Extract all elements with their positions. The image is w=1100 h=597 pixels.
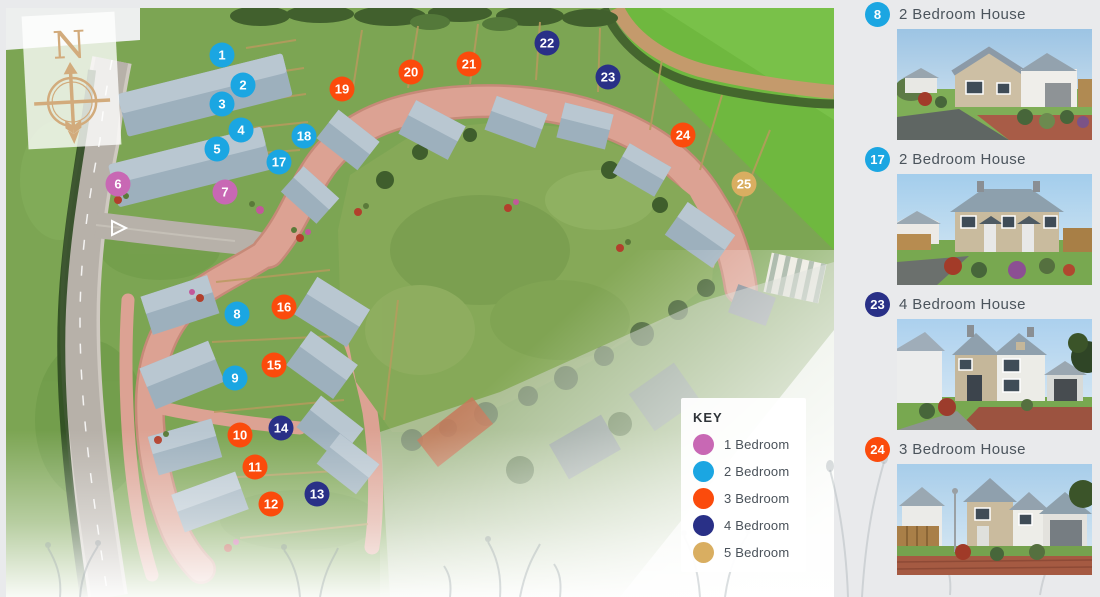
key-row-label: 5 Bedroom bbox=[724, 545, 789, 560]
plot-marker-22[interactable]: 22 bbox=[535, 31, 560, 56]
house-type-label: 2 Bedroom House bbox=[899, 151, 1026, 168]
plot-marker-12[interactable]: 12 bbox=[259, 492, 284, 517]
house-type-label: 3 Bedroom House bbox=[899, 441, 1026, 458]
plot-marker-9[interactable]: 9 bbox=[223, 366, 248, 391]
plot-marker-18[interactable]: 18 bbox=[292, 124, 317, 149]
plot-marker-16[interactable]: 16 bbox=[272, 295, 297, 320]
key-color-dot bbox=[693, 461, 714, 482]
plot-marker-25[interactable]: 25 bbox=[732, 172, 757, 197]
plot-badge: 17 bbox=[865, 147, 890, 172]
plot-marker-6[interactable]: 6 bbox=[106, 172, 131, 197]
house-type-label: 4 Bedroom House bbox=[899, 296, 1026, 313]
plot-marker-4[interactable]: 4 bbox=[229, 118, 254, 143]
compass-north-letter: N bbox=[51, 22, 87, 68]
plot-marker-21[interactable]: 21 bbox=[457, 52, 482, 77]
plot-marker-14[interactable]: 14 bbox=[269, 416, 294, 441]
key-row-label: 4 Bedroom bbox=[724, 518, 789, 533]
plot-marker-10[interactable]: 10 bbox=[228, 423, 253, 448]
house-photo bbox=[897, 319, 1092, 430]
plot-badge: 24 bbox=[865, 437, 890, 462]
plot-marker-3[interactable]: 3 bbox=[210, 92, 235, 117]
site-plan-page: N 12345678910111213141516171819202122232… bbox=[0, 0, 1100, 597]
plot-marker-17[interactable]: 17 bbox=[267, 150, 292, 175]
house-photo bbox=[897, 29, 1092, 140]
key-row-label: 3 Bedroom bbox=[724, 491, 789, 506]
house-photo bbox=[897, 464, 1092, 575]
plot-marker-1[interactable]: 1 bbox=[210, 43, 235, 68]
key-rows: 1 Bedroom 2 Bedroom 3 Bedroom 4 Bedroom … bbox=[693, 434, 806, 563]
plot-marker-7[interactable]: 7 bbox=[213, 180, 238, 205]
compass-rose: N bbox=[22, 12, 122, 150]
plot-marker-20[interactable]: 20 bbox=[399, 60, 424, 85]
plot-badge: 8 bbox=[865, 2, 890, 27]
key-row: 4 Bedroom bbox=[693, 515, 806, 536]
plot-marker-2[interactable]: 2 bbox=[231, 73, 256, 98]
plot-marker-23[interactable]: 23 bbox=[596, 65, 621, 90]
key-row: 3 Bedroom bbox=[693, 488, 806, 509]
key-row-label: 2 Bedroom bbox=[724, 464, 789, 479]
plot-marker-5[interactable]: 5 bbox=[205, 137, 230, 162]
plot-badge: 23 bbox=[865, 292, 890, 317]
key-color-dot bbox=[693, 434, 714, 455]
house-photo bbox=[897, 174, 1092, 285]
plot-marker-19[interactable]: 19 bbox=[330, 77, 355, 102]
key-row-label: 1 Bedroom bbox=[724, 437, 789, 452]
key-color-dot bbox=[693, 515, 714, 536]
house-type-label: 2 Bedroom House bbox=[899, 6, 1026, 23]
key-title: KEY bbox=[693, 410, 806, 425]
plot-marker-11[interactable]: 11 bbox=[243, 455, 268, 480]
key-color-dot bbox=[693, 488, 714, 509]
plot-marker-13[interactable]: 13 bbox=[305, 482, 330, 507]
plot-marker-24[interactable]: 24 bbox=[671, 123, 696, 148]
plot-marker-8[interactable]: 8 bbox=[225, 302, 250, 327]
key-row: 2 Bedroom bbox=[693, 461, 806, 482]
house-type-sidebar: 8 2 Bedroom House bbox=[860, 0, 1100, 597]
key-row: 1 Bedroom bbox=[693, 434, 806, 455]
plot-marker-15[interactable]: 15 bbox=[262, 353, 287, 378]
key-color-dot bbox=[693, 542, 714, 563]
key-row: 5 Bedroom bbox=[693, 542, 806, 563]
map-key: KEY 1 Bedroom 2 Bedroom 3 Bedroom 4 Bedr… bbox=[681, 398, 806, 572]
